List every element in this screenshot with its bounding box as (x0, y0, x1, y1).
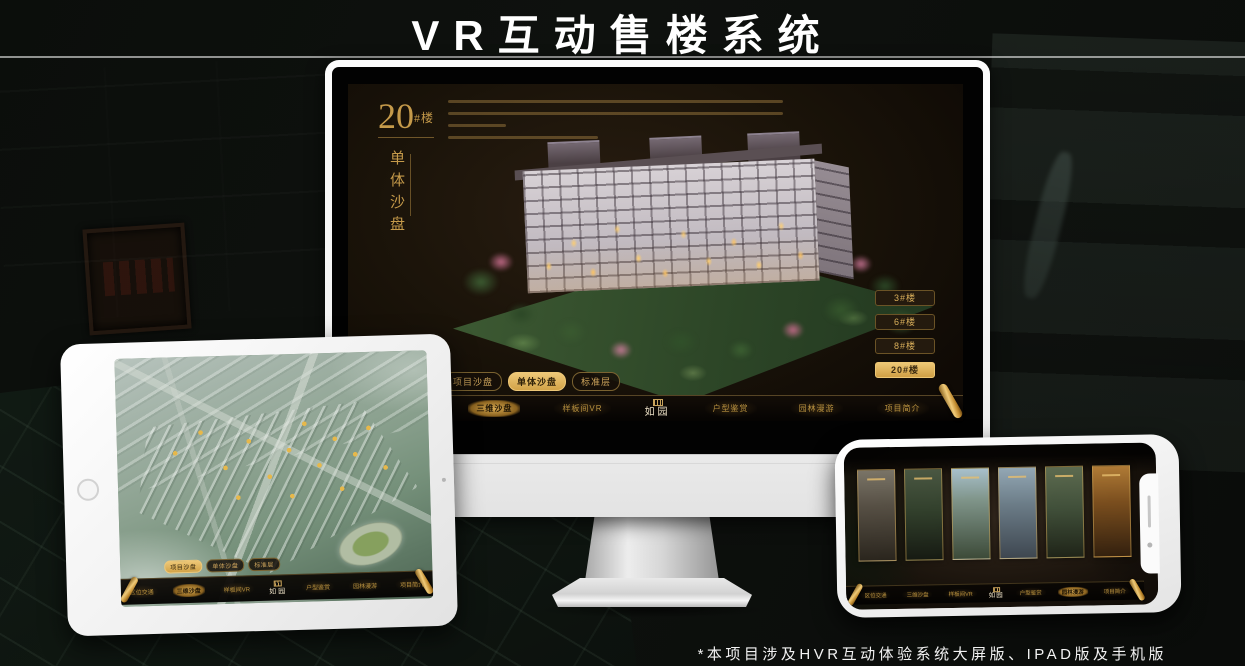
floor-button-8[interactable]: 8#楼 (875, 338, 935, 354)
nav-item-showroom-vr[interactable]: 样板间VR (554, 400, 610, 417)
nav-item-floorplans[interactable]: 户型鉴赏 (1016, 587, 1046, 598)
brand-logo: 如园 (269, 580, 287, 595)
floor-selector: 3#楼 6#楼 8#楼 20#楼 (875, 290, 935, 386)
building-subtitle: 单体沙盘 (386, 150, 407, 250)
nav-item-showroom-vr[interactable]: 样板间VR (945, 589, 977, 600)
promo-canvas: VR互动售楼系统 *本项目涉及HVR互动体验系统大屏版、IPAD版及手机版 20… (0, 0, 1245, 666)
speaker-icon (1147, 496, 1151, 528)
phone-screen: 区位交通 三维沙盘 样板间VR 如园 户型鉴赏 园林漫游 项目简介 (844, 442, 1159, 609)
nav-item-location[interactable]: 区位交通 (860, 590, 890, 601)
brand-logo: 如园 (645, 399, 671, 418)
building-side (814, 160, 853, 279)
page-title: VR互动售楼系统 (0, 2, 1245, 63)
scene-carousel (844, 465, 1144, 562)
background-grid-texture (0, 55, 346, 322)
nav-item-3d-sandbox[interactable]: 三维沙盘 (173, 584, 205, 598)
scene-thumbnail[interactable] (997, 467, 1037, 560)
nav-item-garden-roam[interactable]: 园林漫游 (791, 400, 843, 417)
logo-emblem-icon (274, 580, 282, 586)
brand-logo: 如园 (989, 587, 1004, 600)
building-number-suffix: #楼 (414, 111, 434, 125)
tab-project-sandbox[interactable]: 项目沙盘 (444, 372, 502, 391)
building-render (453, 130, 933, 405)
scene-thumbnail[interactable] (1044, 466, 1084, 559)
tab-project-sandbox[interactable]: 项目沙盘 (164, 560, 202, 574)
camera-icon (1147, 542, 1152, 547)
subtitle-rule (410, 154, 411, 216)
scene-thumbnail[interactable] (856, 469, 896, 562)
nav-item-project-intro[interactable]: 项目简介 (1100, 586, 1130, 597)
tab-standard-floor[interactable]: 标准层 (572, 372, 620, 391)
lit-windows (523, 159, 820, 294)
logo-emblem-icon (653, 399, 663, 406)
scene-thumbnail[interactable] (1091, 465, 1131, 558)
tablet-device: 项目沙盘 单体沙盘 标准层 区位交通 三维沙盘 样板间VR 如园 户型鉴赏 园林… (60, 334, 458, 637)
scene-thumbnail[interactable] (903, 468, 943, 561)
phone-notch (1139, 473, 1160, 573)
tab-standard-floor[interactable]: 标准层 (248, 557, 280, 571)
floor-button-20[interactable]: 20#楼 (875, 362, 935, 378)
tablet-screen: 项目沙盘 单体沙盘 标准层 区位交通 三维沙盘 样板间VR 如园 户型鉴赏 园林… (114, 350, 433, 607)
nav-item-3d-sandbox[interactable]: 三维沙盘 (903, 589, 933, 600)
scene-thumbnail[interactable] (950, 467, 990, 560)
logo-text: 如园 (269, 588, 287, 595)
phone-device: 区位交通 三维沙盘 样板间VR 如园 户型鉴赏 园林漫游 项目简介 (834, 434, 1181, 618)
home-button (77, 478, 100, 501)
nav-item-showroom-vr[interactable]: 样板间VR (220, 582, 255, 596)
floor-button-6[interactable]: 6#楼 (875, 314, 935, 330)
camera-icon (442, 478, 446, 482)
nav-item-floorplans[interactable]: 户型鉴赏 (705, 400, 757, 417)
nav-item-garden-roam[interactable]: 园林漫游 (349, 579, 381, 593)
building-heading: 20#楼 (378, 98, 434, 138)
nav-item-3d-sandbox[interactable]: 三维沙盘 (468, 400, 520, 417)
tab-single-sandbox[interactable]: 单体沙盘 (206, 558, 244, 572)
monitor-stand-base (552, 578, 752, 607)
logo-text: 如园 (645, 408, 671, 418)
footnote: *本项目涉及HVR互动体验系统大屏版、IPAD版及手机版 (698, 643, 1167, 664)
scroll-handle-icon[interactable] (1128, 578, 1146, 602)
nav-item-garden-roam[interactable]: 园林漫游 (1058, 587, 1088, 598)
nav-item-floorplans[interactable]: 户型鉴赏 (302, 580, 334, 594)
building-number: 20 (378, 96, 414, 136)
residential-building (522, 135, 865, 310)
phone-nav-bar: 区位交通 三维沙盘 样板间VR 如园 户型鉴赏 园林漫游 项目简介 (846, 581, 1144, 605)
tab-single-sandbox[interactable]: 单体沙盘 (508, 372, 566, 391)
floor-button-3[interactable]: 3#楼 (875, 290, 935, 306)
scroll-handle-icon[interactable] (937, 382, 964, 419)
background-photo-collage (978, 33, 1245, 472)
logo-text: 如园 (989, 593, 1004, 600)
nav-item-project-intro[interactable]: 项目简介 (877, 400, 929, 417)
view-tabs: 项目沙盘 单体沙盘 标准层 (444, 372, 620, 391)
monitor-stand-neck (585, 517, 719, 581)
